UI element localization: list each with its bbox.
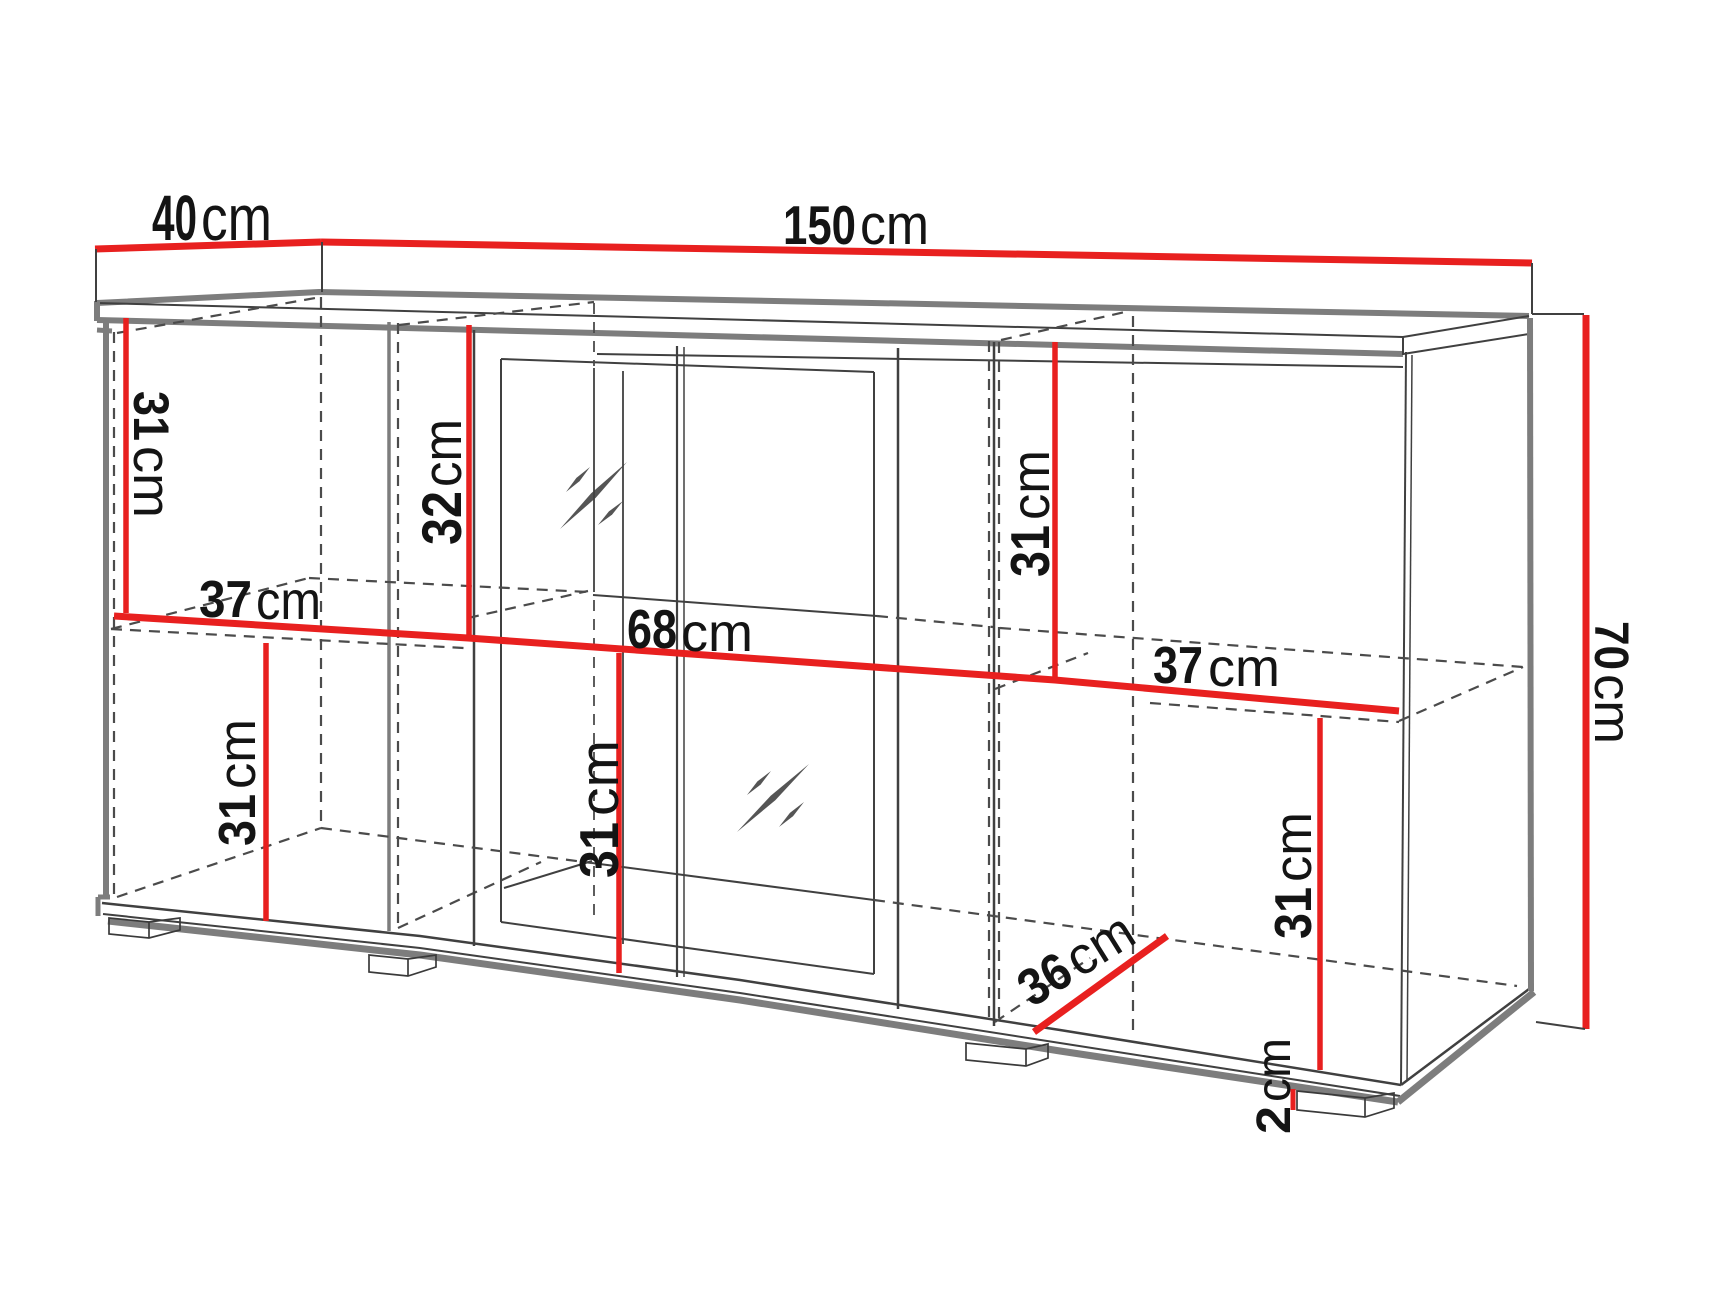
svg-text:70: 70 — [1584, 621, 1637, 670]
svg-text:37: 37 — [1153, 637, 1203, 695]
svg-text:cm: cm — [1248, 1038, 1301, 1102]
svg-text:cm: cm — [411, 419, 473, 487]
svg-text:31: 31 — [568, 822, 630, 878]
svg-text:cm: cm — [681, 603, 753, 663]
svg-text:cm: cm — [122, 446, 181, 518]
svg-text:31: 31 — [123, 391, 179, 441]
svg-text:37: 37 — [199, 571, 252, 629]
svg-text:150: 150 — [783, 194, 856, 256]
svg-text:32: 32 — [410, 491, 473, 545]
svg-text:40: 40 — [152, 182, 197, 254]
svg-text:cm: cm — [1264, 812, 1323, 882]
svg-text:cm: cm — [208, 719, 267, 789]
svg-text:68: 68 — [627, 598, 677, 660]
svg-text:cm: cm — [568, 740, 630, 816]
svg-text:2: 2 — [1248, 1106, 1301, 1134]
svg-text:cm: cm — [1208, 638, 1280, 698]
svg-text:cm: cm — [860, 193, 929, 257]
svg-text:31: 31 — [999, 525, 1061, 577]
svg-text:cm: cm — [1001, 450, 1061, 520]
svg-text:cm: cm — [256, 571, 321, 631]
svg-text:31: 31 — [1265, 887, 1323, 939]
svg-text:cm: cm — [201, 182, 272, 254]
svg-text:cm: cm — [1583, 674, 1641, 744]
svg-text:31: 31 — [209, 794, 267, 846]
